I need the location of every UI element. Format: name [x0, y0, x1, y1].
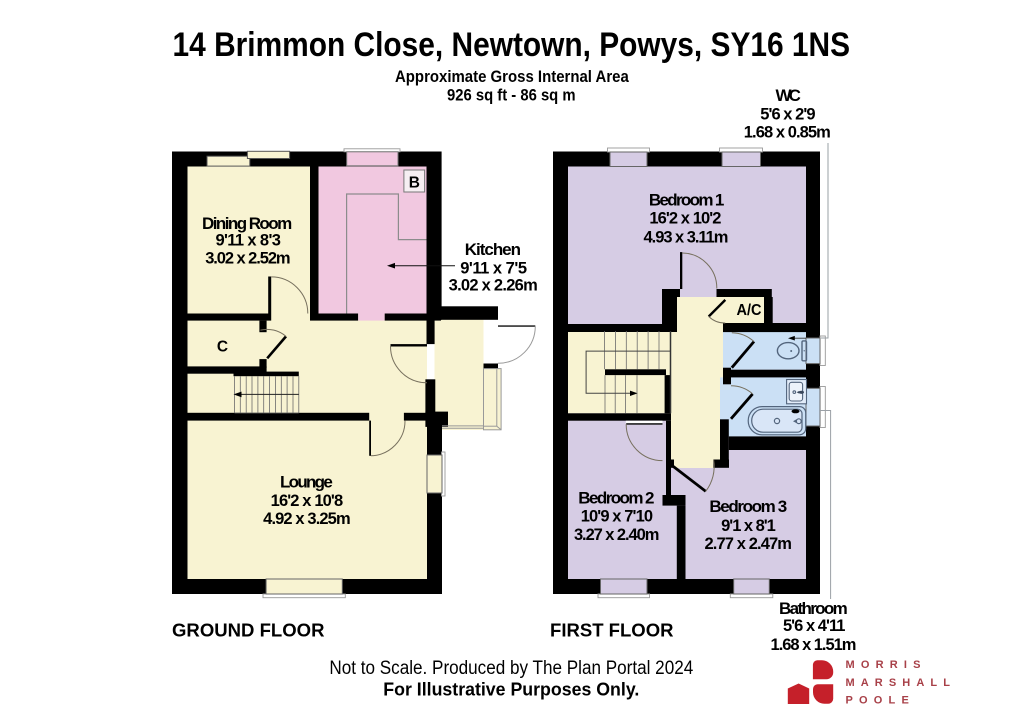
svg-text:9'11 x 7'5: 9'11 x 7'5: [460, 259, 527, 277]
svg-text:Bedroom 3: Bedroom 3: [709, 497, 787, 516]
svg-text:16'2 x 10'2: 16'2 x 10'2: [649, 210, 721, 228]
svg-text:Kitchen: Kitchen: [465, 240, 521, 259]
svg-text:3.02 x 2.52m: 3.02 x 2.52m: [205, 249, 290, 267]
svg-text:1.68 x 0.85m: 1.68 x 0.85m: [744, 124, 831, 142]
svg-text:3.02 x 2.26m: 3.02 x 2.26m: [449, 277, 538, 295]
svg-text:FIRST FLOOR: FIRST FLOOR: [550, 620, 674, 640]
svg-text:Not to Scale. Produced by The: Not to Scale. Produced by The Plan Porta…: [329, 658, 693, 679]
svg-text:MARSHALL: MARSHALL: [846, 677, 957, 689]
svg-text:1.68 x 1.51m: 1.68 x 1.51m: [771, 636, 857, 654]
svg-text:Bedroom 1: Bedroom 1: [649, 191, 725, 210]
svg-text:A/C: A/C: [737, 302, 762, 319]
svg-text:10'9 x 7'10: 10'9 x 7'10: [581, 508, 653, 526]
svg-text:3.27 x 2.40m: 3.27 x 2.40m: [574, 526, 660, 544]
svg-text:4.92 x 3.25m: 4.92 x 3.25m: [263, 510, 351, 528]
svg-text:POOLE: POOLE: [846, 695, 916, 707]
svg-text:5'6 x 4'11: 5'6 x 4'11: [783, 617, 846, 635]
svg-text:9'1 x 8'1: 9'1 x 8'1: [721, 517, 776, 535]
svg-text:For Illustrative Purposes Only: For Illustrative Purposes Only.: [383, 679, 639, 699]
svg-text:9'11 x 8'3: 9'11 x 8'3: [215, 232, 281, 250]
svg-text:Approximate Gross Internal Are: Approximate Gross Internal Area: [395, 67, 629, 86]
svg-text:16'2 x 10'8: 16'2 x 10'8: [271, 492, 344, 510]
svg-text:B: B: [409, 175, 420, 192]
svg-text:Bedroom 2: Bedroom 2: [578, 489, 654, 508]
svg-text:Bathroom: Bathroom: [779, 599, 848, 618]
svg-text:Lounge: Lounge: [280, 473, 333, 492]
svg-text:WC: WC: [776, 86, 801, 105]
svg-text:2.77 x 2.47m: 2.77 x 2.47m: [704, 535, 792, 553]
svg-text:5'6 x 2'9: 5'6 x 2'9: [760, 105, 815, 123]
svg-text:GROUND FLOOR: GROUND FLOOR: [172, 621, 325, 641]
svg-text:C: C: [217, 339, 228, 356]
svg-text:MORRIS: MORRIS: [846, 659, 927, 671]
svg-text:14 Brimmon Close, Newtown, Pow: 14 Brimmon Close, Newtown, Powys, SY16 1…: [173, 26, 851, 64]
svg-text:4.93 x 3.11m: 4.93 x 3.11m: [644, 228, 729, 246]
svg-text:926 sq ft - 86 sq m: 926 sq ft - 86 sq m: [447, 86, 576, 104]
svg-text:Dining Room: Dining Room: [202, 214, 292, 233]
